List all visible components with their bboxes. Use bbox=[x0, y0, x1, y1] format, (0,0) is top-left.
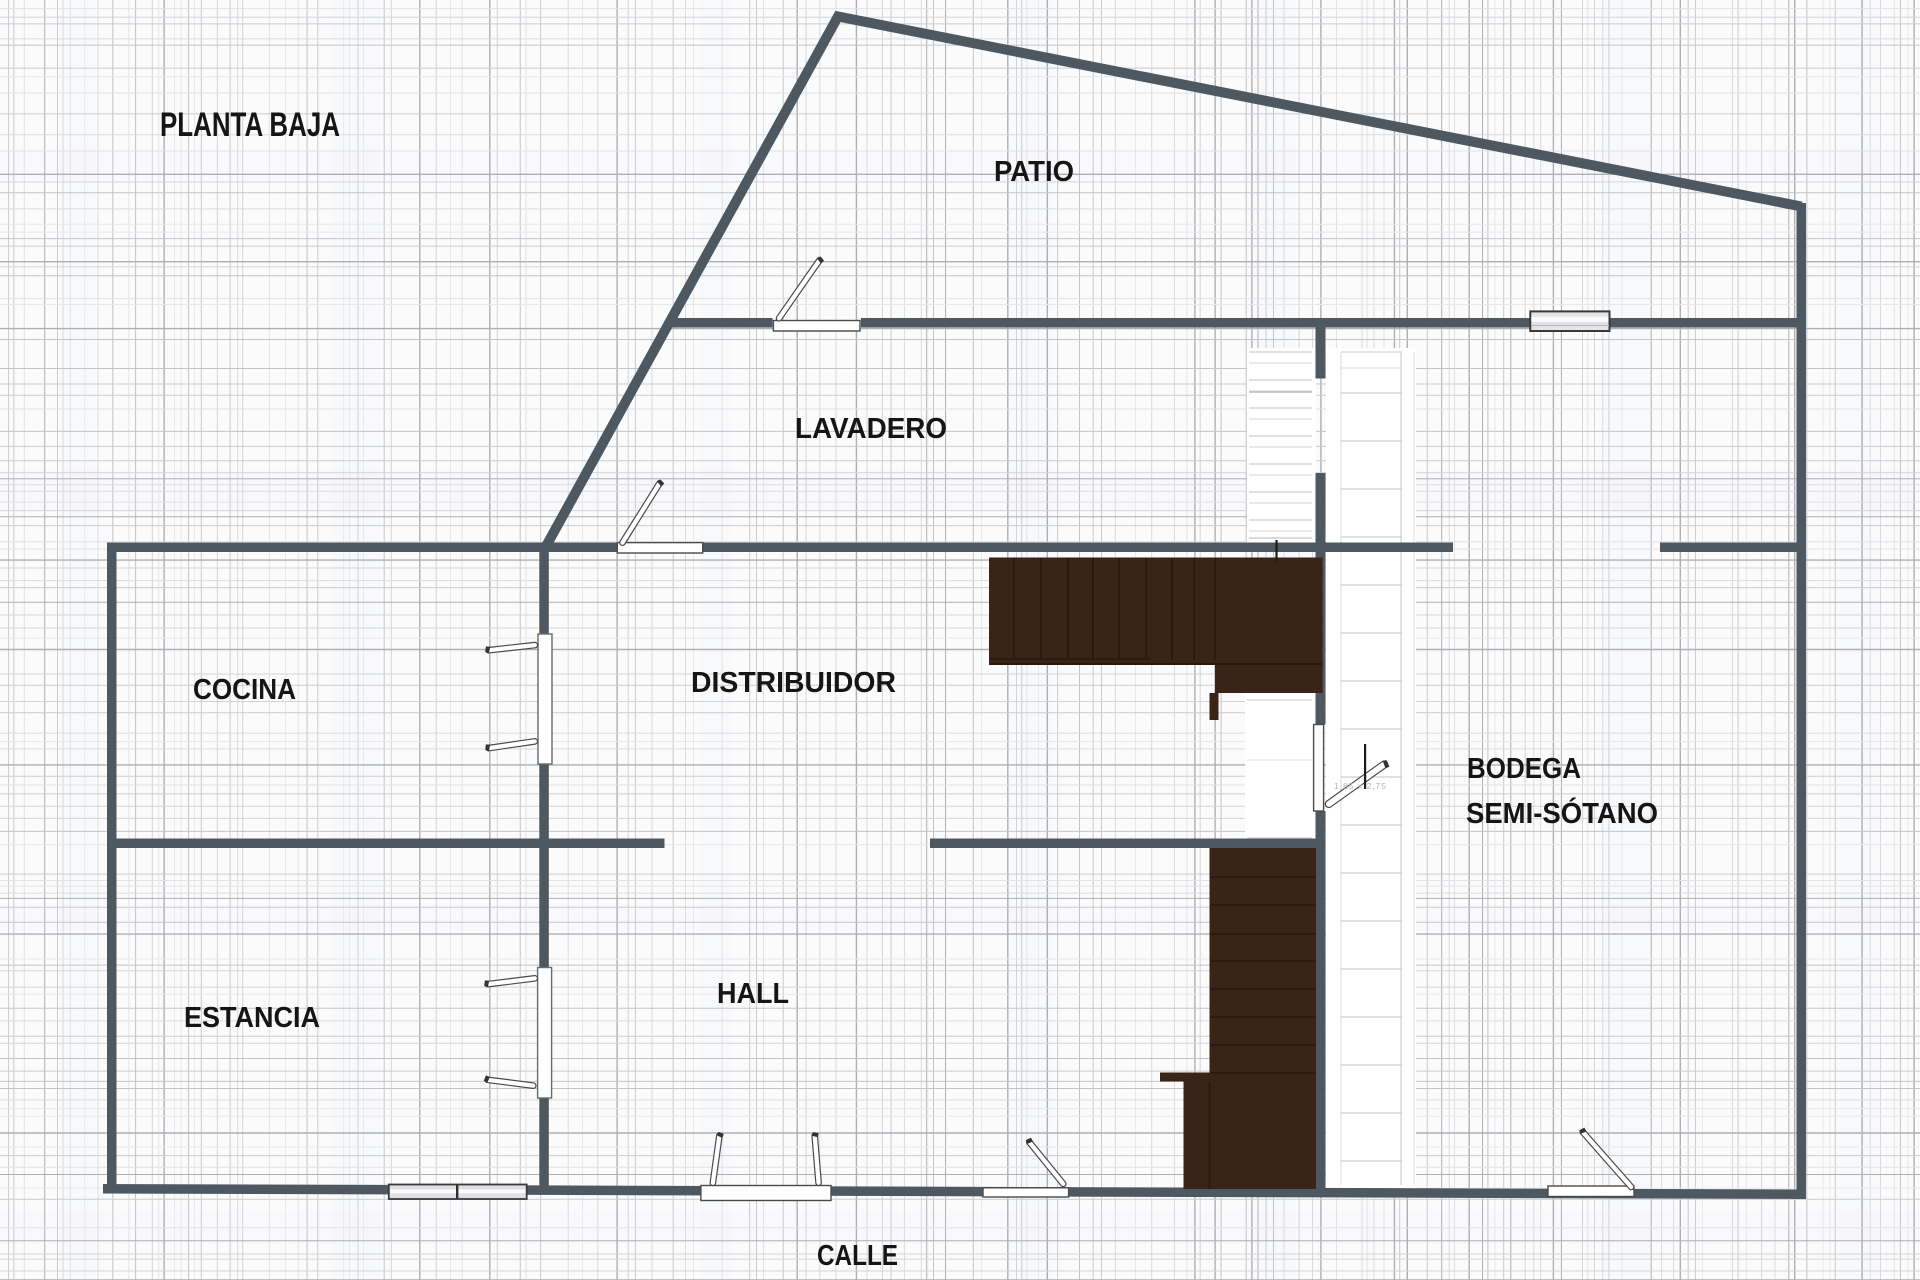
svg-text:CALLE: CALLE bbox=[817, 1240, 898, 1272]
svg-text:ESTANCIA: ESTANCIA bbox=[184, 1002, 320, 1034]
svg-text:PATIO: PATIO bbox=[994, 156, 1074, 188]
svg-text:PLANTA BAJA: PLANTA BAJA bbox=[160, 106, 340, 144]
svg-text:HALL: HALL bbox=[717, 978, 789, 1010]
svg-text:LAVADERO: LAVADERO bbox=[795, 413, 947, 445]
svg-text:DISTRIBUIDOR: DISTRIBUIDOR bbox=[691, 667, 896, 699]
svg-text:SEMI-SÓTANO: SEMI-SÓTANO bbox=[1466, 796, 1658, 830]
svg-text:COCINA: COCINA bbox=[193, 674, 296, 706]
svg-text:BODEGA: BODEGA bbox=[1467, 753, 1581, 785]
svg-text:1,85 x 2,75: 1,85 x 2,75 bbox=[1334, 781, 1386, 791]
